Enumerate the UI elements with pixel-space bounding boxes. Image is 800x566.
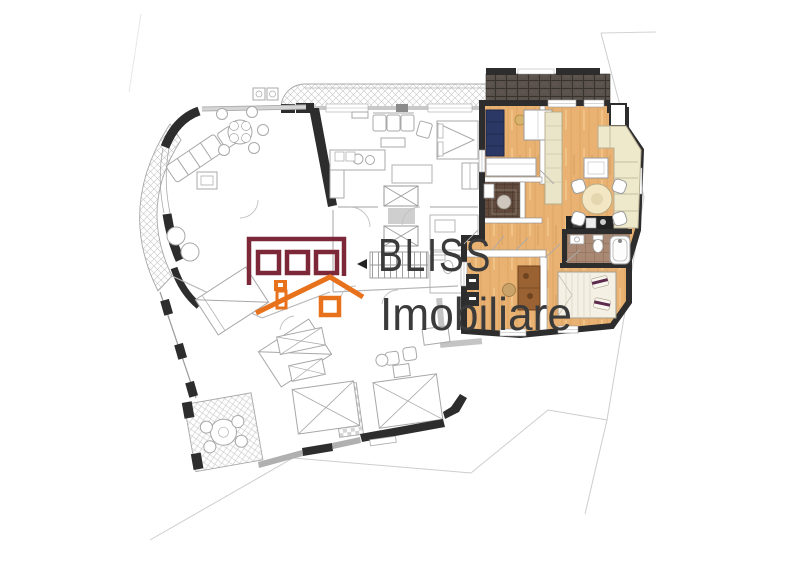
blue-sofa	[486, 110, 504, 156]
dining-table-gray	[217, 88, 279, 156]
pillar	[610, 104, 626, 126]
coffee-table	[584, 158, 608, 178]
gray-terrace	[182, 391, 263, 472]
curved-balcony	[140, 124, 181, 291]
logo-roof	[256, 277, 363, 313]
brand-line1: BLISS	[378, 229, 492, 281]
brand-line2: Imobiliare	[380, 288, 572, 340]
toilet	[593, 235, 603, 253]
floor-plan-canvas: BLISS Imobiliare	[0, 0, 800, 566]
floor-plan-image: BLISS Imobiliare	[0, 0, 800, 566]
sink	[570, 235, 584, 244]
apartment-terrace	[486, 68, 610, 104]
middle-apartment	[330, 112, 478, 198]
logo-window	[321, 298, 339, 315]
desk	[486, 158, 536, 176]
